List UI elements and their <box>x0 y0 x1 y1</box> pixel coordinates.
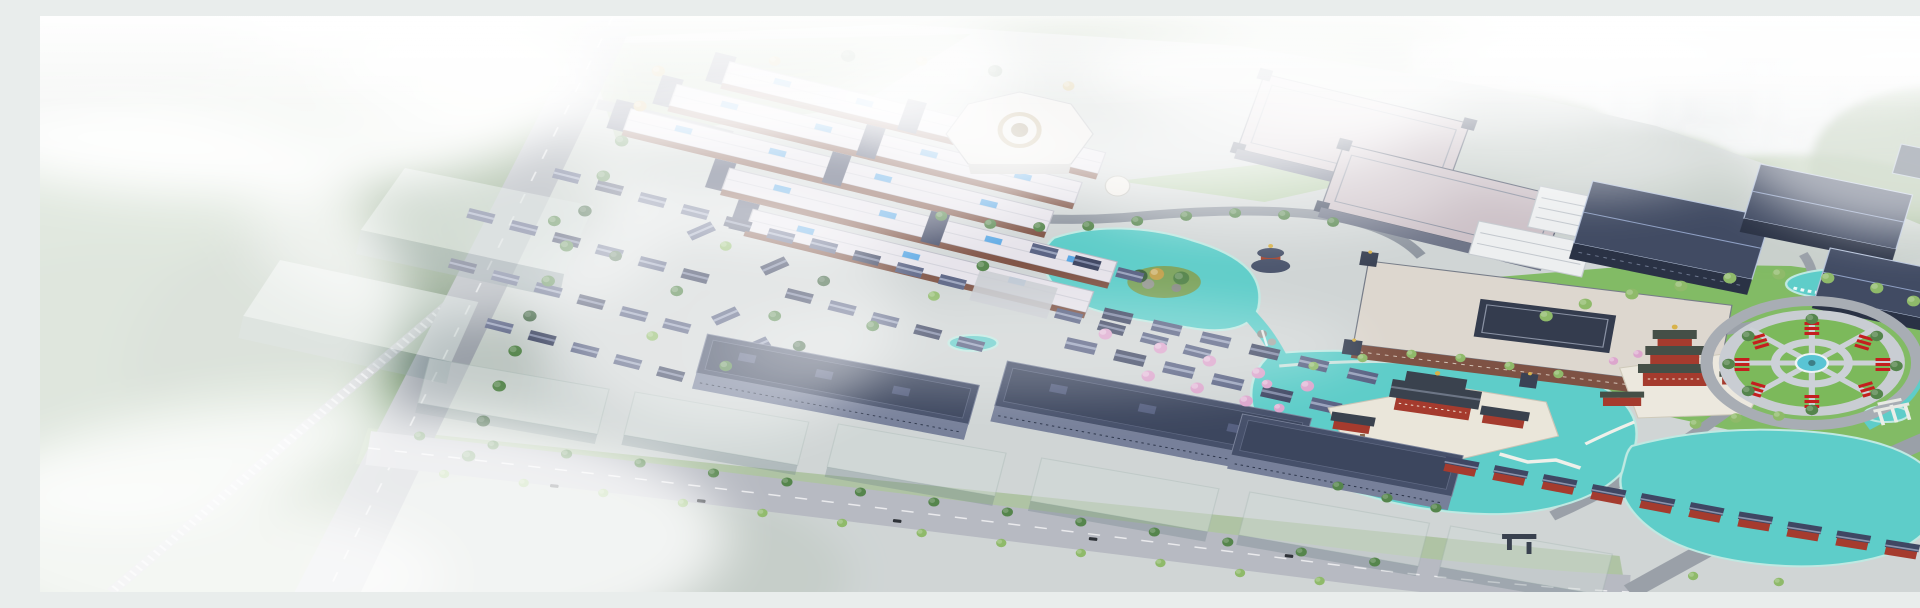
aerial-rendering <box>40 16 1920 592</box>
top-fog-gradient <box>40 16 1920 111</box>
rendering-canvas <box>40 16 1920 592</box>
